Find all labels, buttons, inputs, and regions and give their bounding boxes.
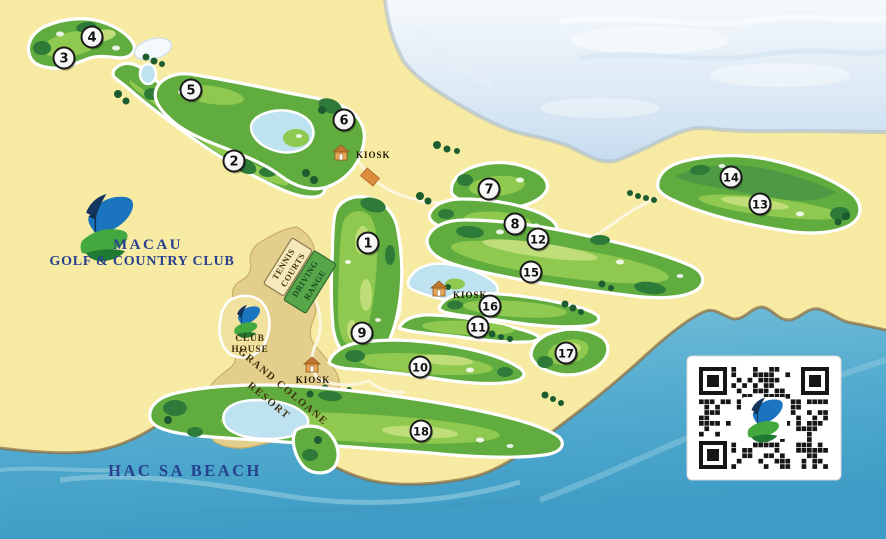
hole-number-2: 2	[229, 155, 238, 170]
logo-subtitle: GOLF & COUNTRY CLUB	[49, 254, 234, 269]
hole-number-16: 16	[482, 300, 498, 314]
beach-label: HAC SA BEACH	[108, 461, 262, 480]
hole-number-13: 13	[752, 198, 768, 212]
hole-number-4: 4	[87, 31, 96, 46]
hole-number-14: 14	[723, 171, 739, 185]
hole-number-8: 8	[510, 218, 519, 233]
hole-number-12: 12	[530, 233, 546, 247]
hole-number-9: 9	[357, 327, 366, 342]
hole-number-10: 10	[412, 361, 428, 375]
logo-title: MACAU	[113, 237, 183, 253]
hole-number-5: 5	[186, 84, 195, 99]
hole-number-15: 15	[523, 266, 539, 280]
hole-number-18: 18	[413, 425, 429, 439]
course-map: TENNIS COURTS DRIVING RANGE CLUB HOUSE G…	[0, 0, 886, 539]
hole-number-6: 6	[339, 114, 348, 129]
qr-finder-top-left	[699, 367, 727, 395]
hole-number-11: 11	[470, 321, 486, 335]
qr-code	[687, 356, 841, 480]
qr-finder-bottom-left	[699, 441, 727, 469]
small-pond	[140, 64, 156, 84]
hole-number-17: 17	[558, 347, 574, 361]
club-house-label-line1: CLUB	[235, 334, 265, 344]
hole-number-3: 3	[59, 52, 68, 67]
kiosk-label: KIOSK	[296, 375, 331, 385]
hole-number-1: 1	[363, 237, 372, 252]
hole-number-7: 7	[484, 183, 493, 198]
qr-finder-top-right	[801, 367, 829, 395]
kiosk-label: KIOSK	[356, 150, 391, 160]
